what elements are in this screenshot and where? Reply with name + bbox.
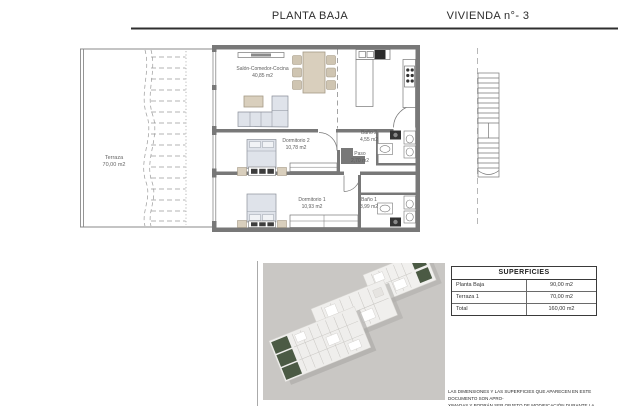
bed1-bench-nightstands — [238, 221, 287, 228]
table-row-label: Total — [452, 304, 527, 315]
room-label-terraza: Terraza 70,00 m2 — [92, 155, 136, 170]
room-label-bano2: Baño 2 4,55 m2 — [357, 130, 381, 144]
table-row-label: Planta Baja — [452, 280, 527, 291]
disclaimer-line: LAS DIMENSIONES Y LAS SUPERFICIES QUE AP… — [448, 389, 620, 403]
plan-sheet: PLANTA BAJA VIVIENDA n°- 3 — [0, 0, 620, 406]
wardrobe-dormitorio2 — [290, 163, 337, 172]
table-row-value: 160,00 m2 — [527, 304, 596, 315]
bed-dormitorio1 — [247, 194, 276, 222]
table-row-value: 70,00 m2 — [527, 292, 596, 303]
render-3d-image — [263, 263, 445, 400]
wardrobe-dormitorio1 — [290, 215, 358, 228]
table-row-value: 90,00 m2 — [527, 280, 596, 291]
bathroom2-fixtures — [378, 131, 416, 159]
room-label-salon: Salón-Comedor-Cocina 40,85 m2 — [225, 66, 300, 80]
table-row: Total 160,00 m2 — [452, 304, 596, 315]
terrace-pergola-pattern — [144, 50, 186, 226]
table-row: Terraza 1 70,00 m2 — [452, 292, 596, 304]
door-arcs — [319, 106, 416, 192]
coffee-table — [244, 96, 263, 107]
bed2-bench-nightstands — [238, 167, 287, 176]
room-label-paso: Paso 2,70 m2 — [345, 151, 375, 165]
bathroom1-fixtures — [378, 196, 416, 227]
room-label-dormitorio1: Dormitorio 1 10,93 m2 — [287, 197, 337, 211]
glazed-wall — [213, 49, 216, 228]
table-row: Planta Baja 90,00 m2 — [452, 280, 596, 292]
room-label-dormitorio2: Dormitorio 2 10,78 m2 — [272, 138, 320, 152]
superficies-table-title: SUPERFICIES — [452, 267, 596, 280]
kitchen-counter — [356, 50, 416, 108]
room-label-bano1: Baño 1 3,99 m2 — [357, 197, 381, 211]
superficies-table: SUPERFICIES Planta Baja 90,00 m2 Terraza… — [451, 266, 597, 316]
terrace-outline — [80, 49, 212, 227]
tv-cabinet — [238, 53, 284, 58]
disclaimer-text: LAS DIMENSIONES Y LAS SUPERFICIES QUE AP… — [448, 389, 620, 406]
staircase — [478, 48, 500, 226]
table-row-label: Terraza 1 — [452, 292, 527, 303]
